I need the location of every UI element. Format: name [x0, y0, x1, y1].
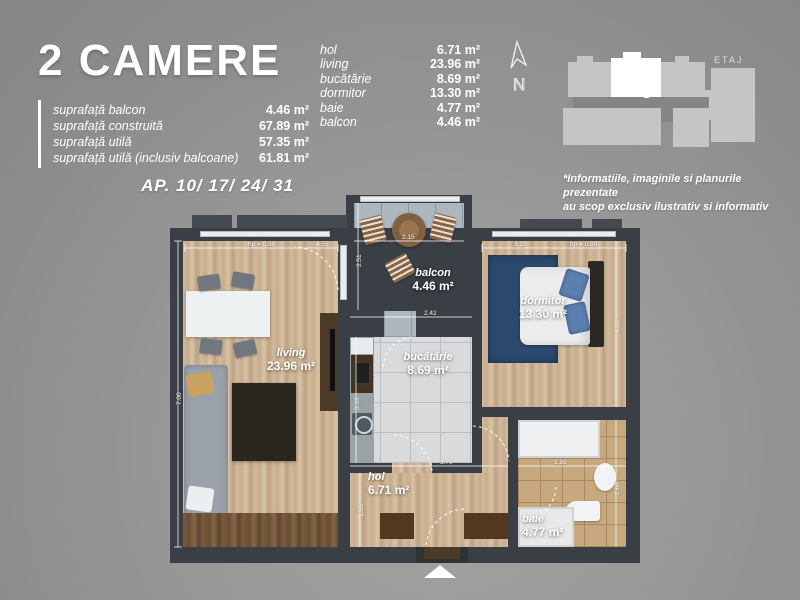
- floor-plan: hp = 0.90 4.55 2.15 2.51 3.20 hp = 0.90 …: [170, 195, 640, 587]
- surface-label: suprafață utilă: [53, 134, 132, 150]
- legend-value: 13.30 m²: [430, 86, 480, 100]
- room-label-baie: baie 4.77 m²: [522, 513, 574, 539]
- surface-row: suprafață utilă 57.35 m²: [53, 134, 309, 150]
- legend-label: dormitor: [320, 86, 366, 100]
- building-minimap: [563, 50, 759, 150]
- legend-row: bucătărie 8.69 m²: [320, 72, 480, 86]
- dim-label: 7.00: [176, 392, 183, 405]
- minimap-unit: [661, 62, 705, 97]
- legend-label: living: [320, 57, 349, 71]
- room-label-bucatarie: bucătărie 8.69 m²: [392, 351, 464, 377]
- legend-label: balcon: [320, 115, 357, 129]
- legend-row: hol 6.71 m²: [320, 43, 480, 57]
- legend-row: baie 4.77 m²: [320, 101, 480, 115]
- surface-label: suprafață utilă (inclusiv balcoane): [53, 150, 239, 166]
- dim-label: 4.03: [614, 320, 621, 333]
- legend-value: 4.77 m²: [437, 101, 480, 115]
- room-area: 13.30 m²: [510, 308, 576, 322]
- page-title: 2 CAMERE: [38, 36, 281, 86]
- dim-label: 3.20: [514, 241, 527, 248]
- room-label-dormitor: dormitor 13.30 m²: [510, 295, 576, 321]
- minimap-entrance-marker: [644, 96, 649, 98]
- minimap-unit: [609, 108, 661, 145]
- surface-label: suprafață construită: [53, 118, 163, 134]
- legend-row: balcon 4.46 m²: [320, 115, 480, 129]
- minimap-unit: [568, 62, 611, 97]
- dim-label: 4.55: [316, 241, 329, 248]
- room-name: baie: [522, 513, 574, 526]
- legend-row: living 23.96 m²: [320, 57, 480, 71]
- room-label-living: living 23.96 m²: [258, 347, 324, 373]
- room-name: bucătărie: [392, 351, 464, 364]
- apartment-numbers: AP. 10/ 17/ 24/ 31: [38, 176, 294, 196]
- room-area: 6.71 m²: [368, 484, 428, 498]
- surface-value: 57.35 m²: [259, 134, 309, 150]
- room-label-balcon: balcon 4.46 m²: [400, 267, 466, 293]
- minimap-corridor: [573, 97, 709, 108]
- legend-label: baie: [320, 101, 344, 115]
- surface-value: 67.89 m²: [259, 118, 309, 134]
- room-label-hol: hol 6.71 m²: [368, 471, 428, 497]
- room-area: 8.69 m²: [392, 364, 464, 378]
- dim-label: 2.51: [356, 254, 363, 267]
- surface-row: suprafață construită 67.89 m²: [53, 118, 309, 134]
- room-name: hol: [368, 471, 428, 484]
- dim-label: 1.55: [358, 504, 365, 517]
- surface-row: suprafață balcon 4.46 m²: [53, 102, 309, 118]
- legend-value: 23.96 m²: [430, 57, 480, 71]
- dim-label: 2.42: [424, 310, 437, 317]
- dim-label: 1.85: [554, 459, 567, 466]
- room-area: 4.77 m²: [522, 526, 574, 540]
- minimap-unit: [673, 108, 709, 147]
- dim-label: 2.15: [402, 234, 415, 241]
- room-legend: hol 6.71 m² living 23.96 m² bucătărie 8.…: [320, 43, 480, 129]
- legend-row: dormitor 13.30 m²: [320, 86, 480, 100]
- room-name: balcon: [400, 267, 466, 280]
- minimap-unit: [711, 68, 755, 142]
- dim-label: 3.33: [354, 397, 361, 410]
- room-name: living: [258, 347, 324, 360]
- legend-value: 4.46 m²: [437, 115, 480, 129]
- dim-label: hp = 0.90: [248, 241, 275, 248]
- surface-summary: suprafață balcon 4.46 m² suprafață const…: [38, 100, 309, 168]
- compass-letter: N: [513, 75, 525, 94]
- dim-label: hp = 0.90: [570, 241, 597, 248]
- legend-value: 8.69 m²: [437, 72, 480, 86]
- surface-value: 61.81 m²: [259, 150, 309, 166]
- room-name: dormitor: [510, 295, 576, 308]
- minimap-unit-highlight: [611, 58, 661, 97]
- dim-label: 2.60: [614, 482, 621, 495]
- surface-value: 4.46 m²: [266, 102, 309, 118]
- minimap-unit-highlight: [623, 52, 641, 58]
- legend-label: bucătărie: [320, 72, 371, 86]
- minimap-unit: [563, 108, 609, 145]
- minimap-unit: [675, 56, 689, 62]
- minimap-unit: [577, 56, 593, 62]
- legend-value: 6.71 m²: [437, 43, 480, 57]
- room-area: 23.96 m²: [258, 360, 324, 374]
- compass-north-icon: N: [503, 38, 539, 98]
- surface-row: suprafață utilă (inclusiv balcoane) 61.8…: [53, 150, 309, 166]
- legend-label: hol: [320, 43, 337, 57]
- dim-label: 3.70: [440, 459, 453, 466]
- room-area: 4.46 m²: [400, 280, 466, 294]
- surface-label: suprafață balcon: [53, 102, 145, 118]
